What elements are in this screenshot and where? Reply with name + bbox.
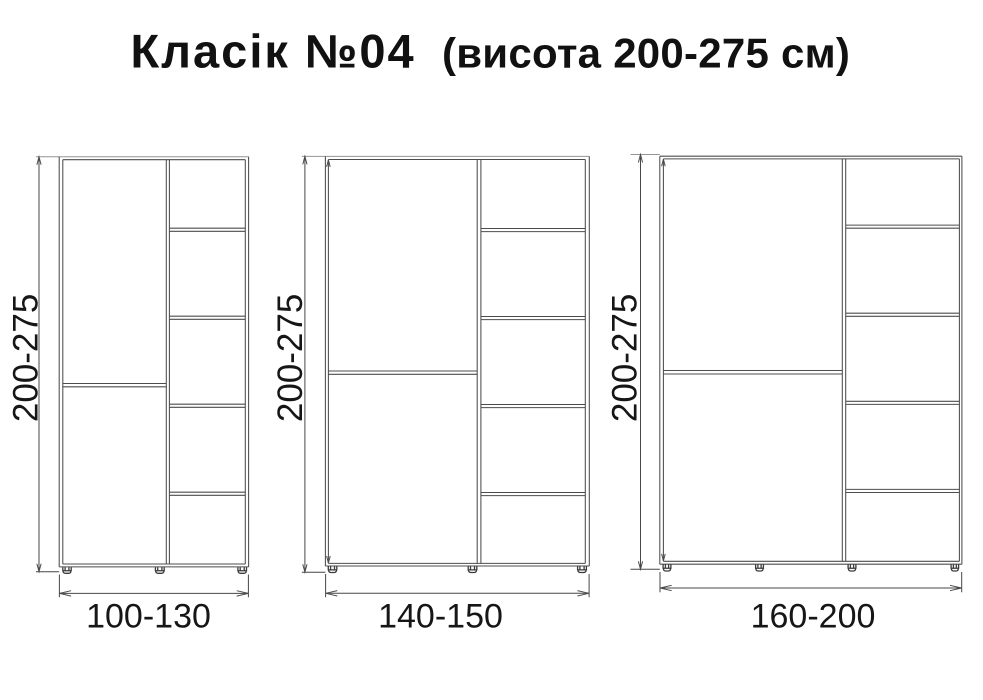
svg-text:200-275: 200-275 xyxy=(7,294,46,422)
svg-text:140-150: 140-150 xyxy=(378,598,503,636)
svg-text:200-275: 200-275 xyxy=(271,294,310,422)
svg-text:200-275: 200-275 xyxy=(606,294,645,422)
svg-text:(висота 200-275 см): (висота 200-275 см) xyxy=(442,30,850,77)
svg-text:160-200: 160-200 xyxy=(751,598,876,636)
svg-text:Класік №04: Класік №04 xyxy=(131,25,416,78)
svg-text:100-130: 100-130 xyxy=(86,598,211,636)
